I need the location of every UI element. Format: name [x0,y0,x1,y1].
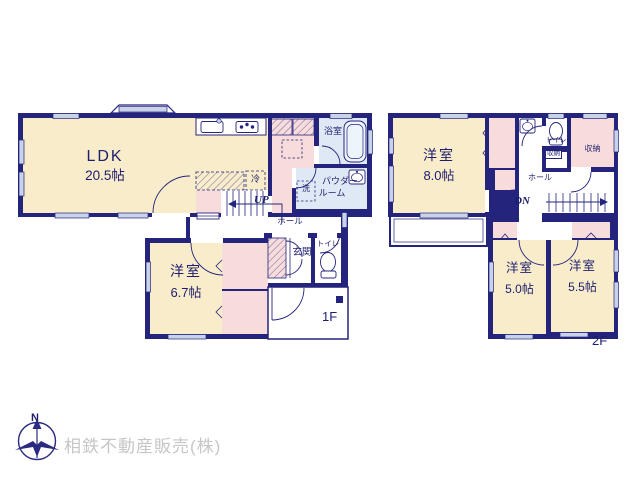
room-label-powder-1: パウダー [314,177,366,186]
room-label-5-5: 洋室 [551,260,614,273]
label-fridge: 冷 [247,175,264,184]
closet-6-7-upper [222,243,268,289]
balcony-2f [390,216,487,246]
room-8-0 [393,118,485,213]
company-name: 相鉄不動産販売(株) [64,438,221,456]
room-size-8-0: 8.0帖 [397,169,481,183]
closet-divider [222,289,268,291]
room-label-6-7: 洋室 [150,264,222,279]
opening-powder-door [292,168,296,188]
label-dn: DN [514,196,530,208]
room-bath [319,118,367,164]
room-size-5-0: 5.0帖 [493,283,546,296]
stairs-2f [542,192,614,213]
label-toilet-2f: トイレ [543,137,569,144]
closet-5-5 [572,222,610,238]
bay-window [111,105,175,113]
closet-6-7-lower [222,291,268,334]
compass-north-label: N [31,413,39,425]
room-label-8-0: 洋室 [397,148,481,163]
f1-hall-left-wall [186,217,190,243]
closet-8-0 [489,118,515,168]
label-storage-large: 収納 [571,145,614,153]
label-washer: 洗 [297,185,315,193]
closet-8-0-small [495,170,515,190]
stair-landing [196,190,221,213]
opening-ldk-door [152,213,190,217]
opening-bath-door [314,146,319,164]
hall-2f-spur [517,222,572,240]
floor-label-2f: 2F [592,334,607,348]
label-up: UP [254,195,269,207]
room-label-bath: 浴室 [317,127,349,136]
label-hall-2f: ホール [522,174,558,182]
storage-large-room [571,118,614,167]
corridor-strip [272,168,292,213]
floorplan-canvas: LDK 20.5帖 浴室 パウダー ルーム 洗 冷 UP ホール 玄関 トイレ … [0,0,640,480]
f1-hall-right-wall [341,209,348,237]
room-label-ldk: LDK [60,149,150,166]
label-hall-1f: ホール [272,217,308,226]
shoe-cabinet [268,238,286,278]
compass-icon [15,419,59,460]
room-size-6-7: 6.7帖 [150,286,222,300]
opening-room67-door [191,238,223,243]
opening-entrance [272,233,308,238]
opening-room80-door [485,190,489,212]
floor-label-1f: 1F [322,310,337,324]
closet-5-0-divider [493,238,517,240]
room-size-ldk: 20.5帖 [60,169,150,183]
opening-storage-door [571,167,591,172]
room-label-5-0: 洋室 [493,262,546,275]
room-size-5-5: 5.5帖 [551,281,614,294]
opening-toilet-1f [317,233,337,238]
room-label-powder-2: ルーム [312,189,352,198]
label-toilet-1f: トイレ [315,240,341,248]
label-storage-small: 収納 [545,150,562,159]
label-entrance: 玄関 [288,248,316,258]
pantry-closet-area [272,118,314,168]
